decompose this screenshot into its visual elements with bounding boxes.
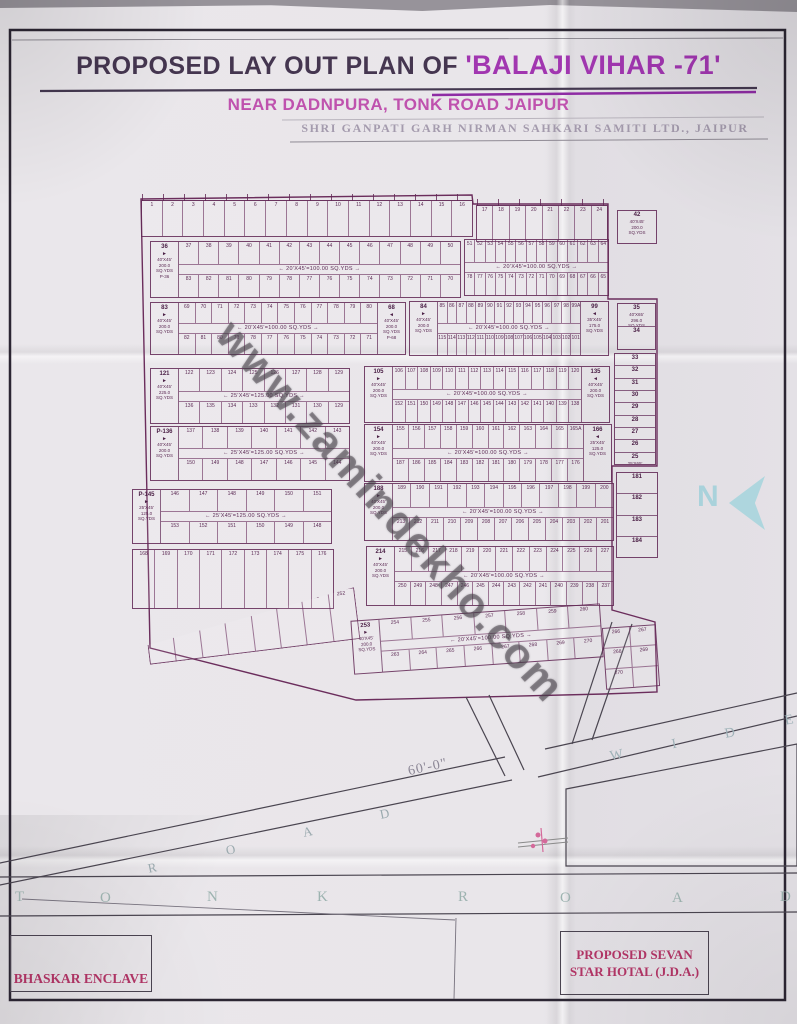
plot-cell: 248 — [222, 601, 254, 654]
plot-cell: 8 — [286, 201, 307, 236]
plot-cell: 221 — [495, 547, 512, 571]
strip1-left: 36►40'X45'200.0SQ.YDSP-36373839404142434… — [150, 241, 461, 298]
plot-cell: 57 — [526, 240, 536, 262]
bhaskar-enclave-box: BHASKAR ENCLAVE — [10, 935, 152, 992]
plot-cell: 16 — [451, 201, 472, 236]
plot-cell: 134 — [221, 402, 242, 424]
bhaskar-enclave-label: BHASKAR ENCLAVE — [14, 971, 148, 987]
plot-cell: 120 — [568, 367, 581, 389]
plot-cell: 109 — [430, 367, 443, 389]
plot-cell: 266 — [603, 627, 630, 648]
tonk-road-horizontal-letter: R — [458, 889, 468, 906]
plot-cell: 3540'X65'296.0SQ.YDS — [618, 304, 655, 327]
plot-cell: 76 — [294, 303, 311, 323]
plot-cell: 172 — [221, 550, 243, 608]
plot-cell: 79 — [344, 303, 361, 323]
plot-cell: 145 — [480, 400, 493, 422]
plot-cell: 222 — [512, 547, 529, 571]
plot-cell: 89 — [475, 302, 485, 323]
plot-cell: 48 — [400, 242, 420, 264]
hotel-label-line2: STAR HOTAL (J.D.A.) — [570, 963, 699, 980]
plot-cell: 52 — [474, 240, 484, 262]
plot-cell: 116 — [518, 367, 531, 389]
plot-cell: 74 — [311, 334, 328, 354]
right-col-b: 33323130292827262525'X65'232.7SQ.YDS — [614, 353, 656, 465]
plot-row: 189190191192193194195196197198199200 — [393, 484, 613, 507]
plot-cell: 74 — [505, 273, 515, 295]
plot-cell: 75 — [277, 303, 294, 323]
plot-annotation-cell: 214►40'X45'200.0SQ.YDS — [367, 547, 395, 605]
plot-cell: 264 — [408, 647, 437, 669]
plot-cell: 73 — [327, 334, 344, 354]
plot-cell: 265 — [436, 645, 465, 667]
plot-cell: 87 — [456, 302, 466, 323]
plot-cell: 79 — [259, 275, 279, 297]
plot-cell: 51 — [465, 240, 474, 262]
plot-cell: 109 — [494, 334, 504, 355]
right-col-a: 3540'X65'296.0SQ.YDS34 — [617, 303, 656, 350]
ne-box: 4240'X45'200.0SQ.YDS — [617, 210, 657, 244]
plot-cell: 69 — [557, 273, 567, 295]
plot-cell: 117 — [531, 367, 544, 389]
plot-row: 1521511501491481471461451441431421411401… — [393, 399, 581, 422]
plot-cell: 151 — [405, 400, 418, 422]
dimension-ticks — [477, 199, 607, 206]
plot-cell: 115 — [505, 367, 518, 389]
plot-cell: 240 — [550, 582, 566, 606]
plot-cell: 140 — [543, 400, 556, 422]
plot-cell: 192 — [447, 484, 465, 507]
plot-cell: 255 — [410, 615, 443, 638]
plot-cell: 178 — [535, 459, 551, 482]
plot-cell: 30 — [615, 391, 655, 403]
plot-cell: 70 — [195, 303, 212, 323]
plot-cell: 23 — [574, 206, 590, 241]
plot-cell: 148 — [442, 400, 455, 422]
plot-row: 858687888990919293949596979899A — [438, 302, 580, 323]
plot-annotation-cell: 68◄40'X45'200.0SQ.YDSP-68 — [377, 303, 405, 354]
plot-cell: 146 — [468, 400, 481, 422]
plot-cell: 187 — [393, 459, 408, 482]
plot-dimension-label: ← 20'X45'=100.00 SQ.YDS → — [465, 262, 608, 272]
plot-cell: 78 — [327, 303, 344, 323]
plot-cell: 181 — [617, 473, 657, 494]
plot-cell: 21 — [542, 206, 558, 241]
plot-cell: 270 — [574, 636, 603, 658]
plot-cell: 199 — [576, 484, 594, 507]
plot-cell: 112 — [466, 334, 476, 355]
plot-cell: 149 — [274, 522, 303, 543]
north-strip-a: 12345678910111213141516 — [141, 200, 473, 237]
plot-cell: 241 — [535, 582, 551, 606]
plot-cell: 110 — [442, 367, 455, 389]
plot-cell: 206 — [511, 518, 528, 541]
tonk-road-horizontal-letter: A — [672, 890, 683, 907]
strip2-right: 84►40'X45'200.0SQ.YDS8586878889909192939… — [409, 301, 609, 356]
plot-cell: 47 — [379, 242, 399, 264]
plot-cell: 170 — [177, 550, 199, 608]
plot-cell: 85 — [438, 302, 447, 323]
plot-cell: 46 — [359, 242, 379, 264]
plot-cell: 176 — [567, 459, 583, 482]
plot-cell: 60 — [557, 240, 567, 262]
plot-cell: 163 — [519, 425, 535, 448]
strip4-right: 154►40'X45'200.0SQ.YDS155156157158159160… — [364, 424, 612, 482]
plot-cell: 26 — [615, 440, 655, 452]
plot-cell: 254 — [379, 618, 411, 641]
plot-cell: 201 — [596, 518, 613, 541]
plot-cell: 135 — [199, 402, 220, 424]
plot-cell: 141 — [531, 400, 544, 422]
plot-cell: 76 — [485, 273, 495, 295]
plot-cell: 184 — [440, 459, 456, 482]
plot-cell: 263 — [382, 649, 410, 671]
plot-cell: 155 — [393, 425, 408, 448]
plot-annotation-cell: 105►40'X45'200.0SQ.YDS — [365, 367, 393, 422]
plot-annotation-cell: 99◄35'X45'175.0SQ.YDS — [580, 302, 608, 355]
plot-cell: 225 — [562, 547, 579, 571]
strip2-left: 83►40'X45'200.0SQ.YDS6970717273747576777… — [150, 302, 406, 355]
plot-row: 168169170171172173174175176 — [133, 550, 333, 608]
north-label: N — [697, 480, 719, 514]
plot-cell: 107 — [405, 367, 418, 389]
plot-annotation-cell: P-136►40'X45'200.0SQ.YDS — [151, 427, 179, 480]
plot-cell: 13 — [389, 201, 410, 236]
plot-row: 12345678910111213141516 — [142, 201, 472, 236]
plot-cell: 108 — [417, 367, 430, 389]
strip5-left: P-145►25'X45'125.0SQ.YDS1461471481491501… — [132, 489, 332, 544]
plot-cell: 2 — [162, 201, 183, 236]
plot-cell: 69 — [179, 303, 195, 323]
plot-cell: 112 — [468, 367, 481, 389]
plot-cell: 98 — [561, 302, 571, 323]
plot-cell: 9 — [307, 201, 328, 236]
plot-dimension-label: ← 20'X45'=100.00 SQ.YDS → — [438, 323, 580, 333]
tonk-road-horizontal-letter: O — [100, 890, 111, 907]
plot-cell: 72 — [526, 273, 536, 295]
plot-cell: 97 — [551, 302, 561, 323]
plot-cell: 39 — [218, 242, 238, 264]
plot-row: 5152535455565758596061626364 — [465, 240, 608, 262]
plot-cell: 105 — [532, 334, 542, 355]
tonk-road-horizontal-letter: D — [780, 889, 791, 906]
scanned-layout-plan-photo: { "title": {"prefix": "PROPOSED LAY OUT … — [0, 0, 797, 1024]
plot-cell: 18 — [492, 206, 508, 241]
tonk-road-horizontal-letter: O — [560, 890, 571, 907]
plot-annotation-cell: 84►40'X45'200.0SQ.YDS — [410, 302, 438, 355]
plot-cell: 180 — [503, 459, 519, 482]
plot-cell: 28 — [615, 416, 655, 428]
plot-cell: 59 — [546, 240, 556, 262]
plot-cell: 150 — [179, 459, 202, 480]
plot-annotation-cell: 121►40'X45'225.0SQ.YDS — [151, 369, 179, 423]
plot-cell: 96 — [542, 302, 552, 323]
plot-cell: 24 — [591, 206, 607, 241]
plot-cell: 110 — [485, 334, 495, 355]
plot-cell: 63 — [587, 240, 597, 262]
plot-cell: 4 — [203, 201, 224, 236]
plot-cell: 67 — [577, 273, 587, 295]
plot-cell: 209 — [460, 518, 477, 541]
plot-cell: 157 — [424, 425, 440, 448]
plot-cell: 91 — [494, 302, 504, 323]
plot-cell: 71 — [211, 303, 228, 323]
plot-annotation-cell: 135◄40'X45'200.0SQ.YDS — [581, 367, 609, 422]
plot-cell: 115 — [438, 334, 447, 355]
plot-row: 1061071081091101111121131141151161171181… — [393, 367, 581, 389]
plot-cell: 173 — [244, 550, 266, 608]
plot-cell: 149 — [202, 459, 226, 480]
plot-cell: 43 — [299, 242, 319, 264]
plot-cell: 268 — [604, 647, 631, 668]
plot-cell: 147 — [251, 459, 275, 480]
plot-cell: 77 — [299, 275, 319, 297]
road-wide-letter: W — [609, 747, 625, 765]
plot-cell: 151 — [217, 522, 246, 543]
plot-cell: 220 — [478, 547, 495, 571]
plot-cell: 106 — [393, 367, 405, 389]
plot-annotation-cell: 253►40'X45'200.0SQ.YDS — [351, 620, 383, 674]
plot-cell: 260 — [567, 604, 600, 627]
plot-cell: 182 — [472, 459, 488, 482]
plot-cell: 184 — [617, 537, 657, 557]
strip1-right: 5152535455565758596061626364← 20'X45'=10… — [464, 239, 609, 296]
plot-cell: 270 — [606, 668, 633, 689]
plot-row: 146147148149150151 — [161, 490, 331, 511]
plot-annotation-cell: 83►40'X45'200.0SQ.YDS — [151, 303, 179, 354]
plot-cell: 50 — [440, 242, 460, 264]
plot-cell: 103 — [551, 334, 561, 355]
plot-cell: 242 — [519, 582, 535, 606]
tonk-road-horizontal-letter: T — [15, 889, 24, 906]
plot-cell: 237 — [597, 582, 613, 606]
plot-cell: 111 — [455, 367, 468, 389]
plot-dimension-label: ← 20'X45'=100.00 SQ.YDS → — [179, 323, 377, 333]
plot-cell: 139 — [556, 400, 569, 422]
plot-cell: 77 — [311, 303, 328, 323]
plot-cell: 140 — [251, 427, 275, 448]
plot-cell: 118 — [543, 367, 556, 389]
plot-cell: 44 — [319, 242, 339, 264]
plot-cell: 14 — [410, 201, 431, 236]
plot-cell: 68 — [567, 273, 577, 295]
plot-cell: 183 — [456, 459, 472, 482]
plot-cell: 165A — [567, 425, 583, 448]
plot-cell — [631, 666, 659, 687]
plot-cell: 80 — [238, 275, 258, 297]
plot-cell: 71 — [536, 273, 546, 295]
plot-row: 8382818079787776757473727170 — [179, 274, 460, 297]
plot-cell: 239 — [566, 582, 582, 606]
plot-cell: 267 — [628, 625, 656, 646]
plot-cell: 144 — [493, 400, 506, 422]
plot-cell: 146 — [276, 459, 300, 480]
plot-row: 155156157158159160161162163164165165A — [393, 425, 583, 448]
plot-cell: 205 — [528, 518, 545, 541]
plot-cell: 37 — [179, 242, 198, 264]
plot-cell: 61 — [567, 240, 577, 262]
plot-cell: 113 — [480, 367, 493, 389]
plot-cell: 111 — [475, 334, 485, 355]
plot-cell: 227 — [596, 547, 613, 571]
plot-cell: 106 — [523, 334, 533, 355]
plot-cell: 185 — [424, 459, 440, 482]
hotel-label-line1: PROPOSED SEVAN — [576, 946, 692, 963]
plot-cell: 114 — [493, 367, 506, 389]
plot-cell: 143 — [505, 400, 518, 422]
plot-cell: 146 — [161, 490, 189, 511]
plot-cell: 148 — [217, 490, 246, 511]
plot-cell: 179 — [519, 459, 535, 482]
plot-cell: 149 — [246, 490, 275, 511]
plot-cell: 161 — [488, 425, 504, 448]
plot-cell: 247 — [196, 604, 228, 657]
plot-cell: 138 — [202, 427, 226, 448]
plot-cell: 174 — [266, 550, 288, 608]
plot-cell: 40 — [238, 242, 258, 264]
plot-cell: 246 — [170, 608, 202, 661]
plot-cell: 70 — [546, 273, 556, 295]
plot-cell: 3 — [182, 201, 203, 236]
plot-cell: 101 — [570, 334, 580, 355]
plot-cell: 200 — [595, 484, 613, 507]
plot-cell: 169 — [154, 550, 176, 608]
plot-cell: 195 — [503, 484, 521, 507]
plot-cell: 243 — [503, 582, 519, 606]
plot-cell: 58 — [536, 240, 546, 262]
plot-cell: 137 — [179, 427, 202, 448]
plot-cell: 20 — [525, 206, 541, 241]
plot-cell: 238 — [582, 582, 598, 606]
tonk-road-horizontal-letter: K — [317, 889, 328, 906]
plot-cell: 5 — [224, 201, 245, 236]
right-col-c: 181182183184 — [616, 472, 658, 558]
plot-cell: 107 — [513, 334, 523, 355]
plot-cell: 186 — [408, 459, 424, 482]
plot-cell: 86 — [447, 302, 457, 323]
plot-cell: 75 — [294, 334, 311, 354]
plot-cell: 93 — [513, 302, 523, 323]
plot-cell: 2525'X65'232.7SQ.YDS — [615, 453, 655, 464]
plot-cell: 19 — [509, 206, 525, 241]
plot-cell: 123 — [199, 369, 220, 391]
plot-cell: 73 — [379, 275, 399, 297]
plot-cell: 122 — [179, 369, 199, 391]
plot-cell: 102 — [561, 334, 571, 355]
plot-cell: 168 — [133, 550, 154, 608]
north-strip-b: 1718192021222324 — [476, 205, 608, 242]
plot-cell: 54 — [495, 240, 505, 262]
plot-cell: 119 — [556, 367, 569, 389]
plot-row: 697071727374757677787980 — [179, 303, 377, 323]
plot-cell: 203 — [562, 518, 579, 541]
plot-cell: 65 — [598, 273, 608, 295]
tonk-road-horizontal-letter: N — [207, 889, 218, 906]
plot-cell: 142 — [518, 400, 531, 422]
plot-cell: 181 — [488, 459, 504, 482]
plot-cell: 32 — [615, 366, 655, 378]
plot-cell: 27 — [615, 428, 655, 440]
plot-cell: 76 — [277, 334, 294, 354]
plot-cell: 197 — [539, 484, 557, 507]
plot-cell: 71 — [360, 334, 377, 354]
plot-dimension-label: ← 20'X45'=100.00 SQ.YDS → — [393, 389, 581, 399]
plot-cell: 139 — [227, 427, 251, 448]
plot-cell: 171 — [199, 550, 221, 608]
plot-cell: 38 — [198, 242, 218, 264]
plot-cell: 15 — [431, 201, 452, 236]
plot-cell: 49 — [420, 242, 440, 264]
plot-cell: 160 — [472, 425, 488, 448]
plot-cell: 162 — [503, 425, 519, 448]
plot-cell: 31 — [615, 379, 655, 391]
plot-cell: 99A — [570, 302, 580, 323]
plot-cell: 74 — [261, 303, 278, 323]
plot-dimension-label: ← 25'X45'=125.00 SQ.YDS → — [161, 511, 331, 521]
plot-cell: 114 — [447, 334, 457, 355]
plot-cell: 129 — [328, 369, 349, 391]
plot-row: 3738394041424344454647484950 — [179, 242, 460, 264]
plot-cell: 22 — [558, 206, 574, 241]
plot-cell: 81 — [218, 275, 238, 297]
plot-cell: 193 — [466, 484, 484, 507]
plot-cell: 66 — [587, 273, 597, 295]
plot-annotation-cell: 36►40'X45'200.0SQ.YDSP-36 — [151, 242, 179, 297]
plot-cell: 250 — [395, 582, 410, 606]
plot-cell: 147 — [455, 400, 468, 422]
plot-cell: 45 — [339, 242, 359, 264]
plot-dimension-label: ← 20'X45'=100.00 SQ.YDS → — [393, 448, 583, 458]
plot-row: 270 — [606, 665, 659, 689]
plot-cell: 90 — [485, 302, 495, 323]
plot-cell: 82 — [198, 275, 218, 297]
plot-cell: 73 — [515, 273, 525, 295]
plot-cell: 202 — [579, 518, 596, 541]
plot-annotation-cell: P-145►25'X45'125.0SQ.YDS — [133, 490, 161, 543]
strip3-right: 105►40'X45'200.0SQ.YDS106107108109110111… — [364, 366, 610, 423]
plot-cell: 83 — [179, 275, 198, 297]
plot-cell: 41 — [259, 242, 279, 264]
plot-annotation-cell: 166◄25'X45'125.0SQ.YDS — [583, 425, 611, 481]
strip7-end: 266267268269270 — [602, 624, 660, 690]
plot-cell: 72 — [344, 334, 361, 354]
plot-cell: 204 — [545, 518, 562, 541]
plot-cell: 224 — [546, 547, 563, 571]
plot-cell: 34 — [618, 327, 655, 349]
plot-cell: 159 — [456, 425, 472, 448]
plot-cell: 136 — [179, 402, 199, 424]
plot-cell: 150 — [417, 400, 430, 422]
plot-cell: 259 — [536, 607, 569, 630]
plot-row: 7877767574737271706968676665 — [465, 272, 608, 295]
plot-cell: 92 — [504, 302, 514, 323]
plot-cell: 6 — [244, 201, 265, 236]
proposed-hotel-box: PROPOSED SEVAN STAR HOTAL (J.D.A.) — [560, 931, 709, 995]
plot-cell: 175 — [288, 550, 310, 608]
plot-cell: 75 — [495, 273, 505, 295]
plot-cell: 12 — [369, 201, 390, 236]
plot-dimension-label: ← 20'X45'=100.00 SQ.YDS → — [179, 264, 460, 274]
plot-cell: 55 — [505, 240, 515, 262]
plot-cell: 164 — [535, 425, 551, 448]
plot-cell: 88 — [466, 302, 476, 323]
plot-cell: 78 — [279, 275, 299, 297]
plot-cell: 147 — [189, 490, 218, 511]
plot-cell: 148 — [303, 522, 332, 543]
plot-cell: 75 — [339, 275, 359, 297]
plot-cell: 53 — [485, 240, 495, 262]
plot-cell: 182 — [617, 494, 657, 515]
